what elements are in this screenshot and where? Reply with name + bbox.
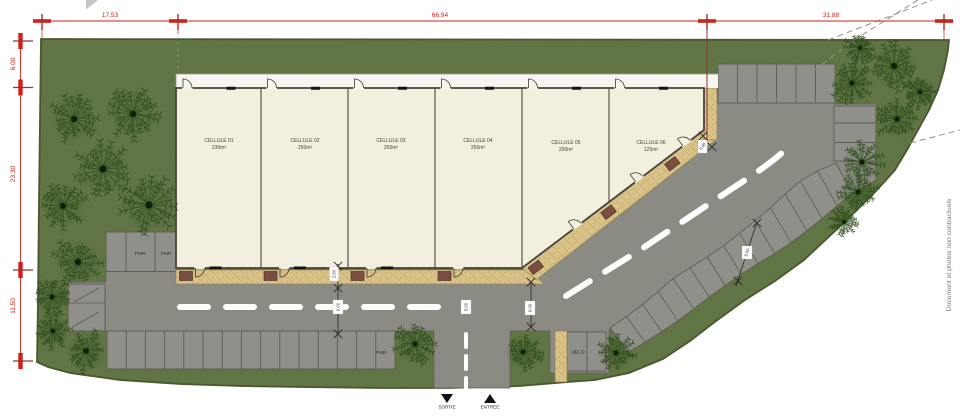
svg-text:Document et photos non contrac: Document et photos non contractuels	[946, 198, 953, 311]
svg-text:CELLULE 04: CELLULE 04	[463, 138, 492, 144]
svg-text:200m²: 200m²	[559, 147, 574, 153]
svg-text:230m²: 230m²	[212, 145, 227, 151]
svg-text:PMR: PMR	[135, 251, 146, 257]
svg-text:125m²: 125m²	[644, 147, 659, 153]
svg-text:5.00: 5.00	[463, 302, 468, 311]
svg-text:250m²: 250m²	[298, 145, 313, 151]
svg-text:6.00: 6.00	[527, 303, 532, 312]
svg-text:CELLULE 01: CELLULE 01	[204, 138, 233, 144]
svg-text:SORTIE: SORTIE	[438, 405, 455, 410]
svg-text:CELLULE 05: CELLULE 05	[551, 140, 580, 146]
svg-text:ENTREE: ENTREE	[481, 405, 500, 410]
svg-text:CELLULE 02: CELLULE 02	[290, 138, 319, 144]
svg-text:250m²: 250m²	[471, 145, 486, 151]
svg-text:2.00: 2.00	[331, 269, 336, 278]
svg-text:CELLULE 03: CELLULE 03	[376, 138, 405, 144]
svg-text:PMR: PMR	[376, 350, 387, 356]
svg-text:11.50: 11.50	[10, 298, 17, 314]
svg-text:6.00: 6.00	[10, 57, 17, 70]
svg-text:PMR: PMR	[161, 251, 172, 257]
svg-text:66.94: 66.94	[432, 12, 449, 19]
svg-text:17.53: 17.53	[102, 12, 119, 19]
svg-text:CELLULE 06: CELLULE 06	[636, 140, 665, 146]
svg-text:23.30: 23.30	[10, 165, 17, 182]
svg-text:VELO: VELO	[571, 350, 584, 356]
svg-text:250m²: 250m²	[384, 145, 399, 151]
svg-text:31.88: 31.88	[823, 12, 840, 19]
svg-text:6.00: 6.00	[335, 302, 340, 311]
